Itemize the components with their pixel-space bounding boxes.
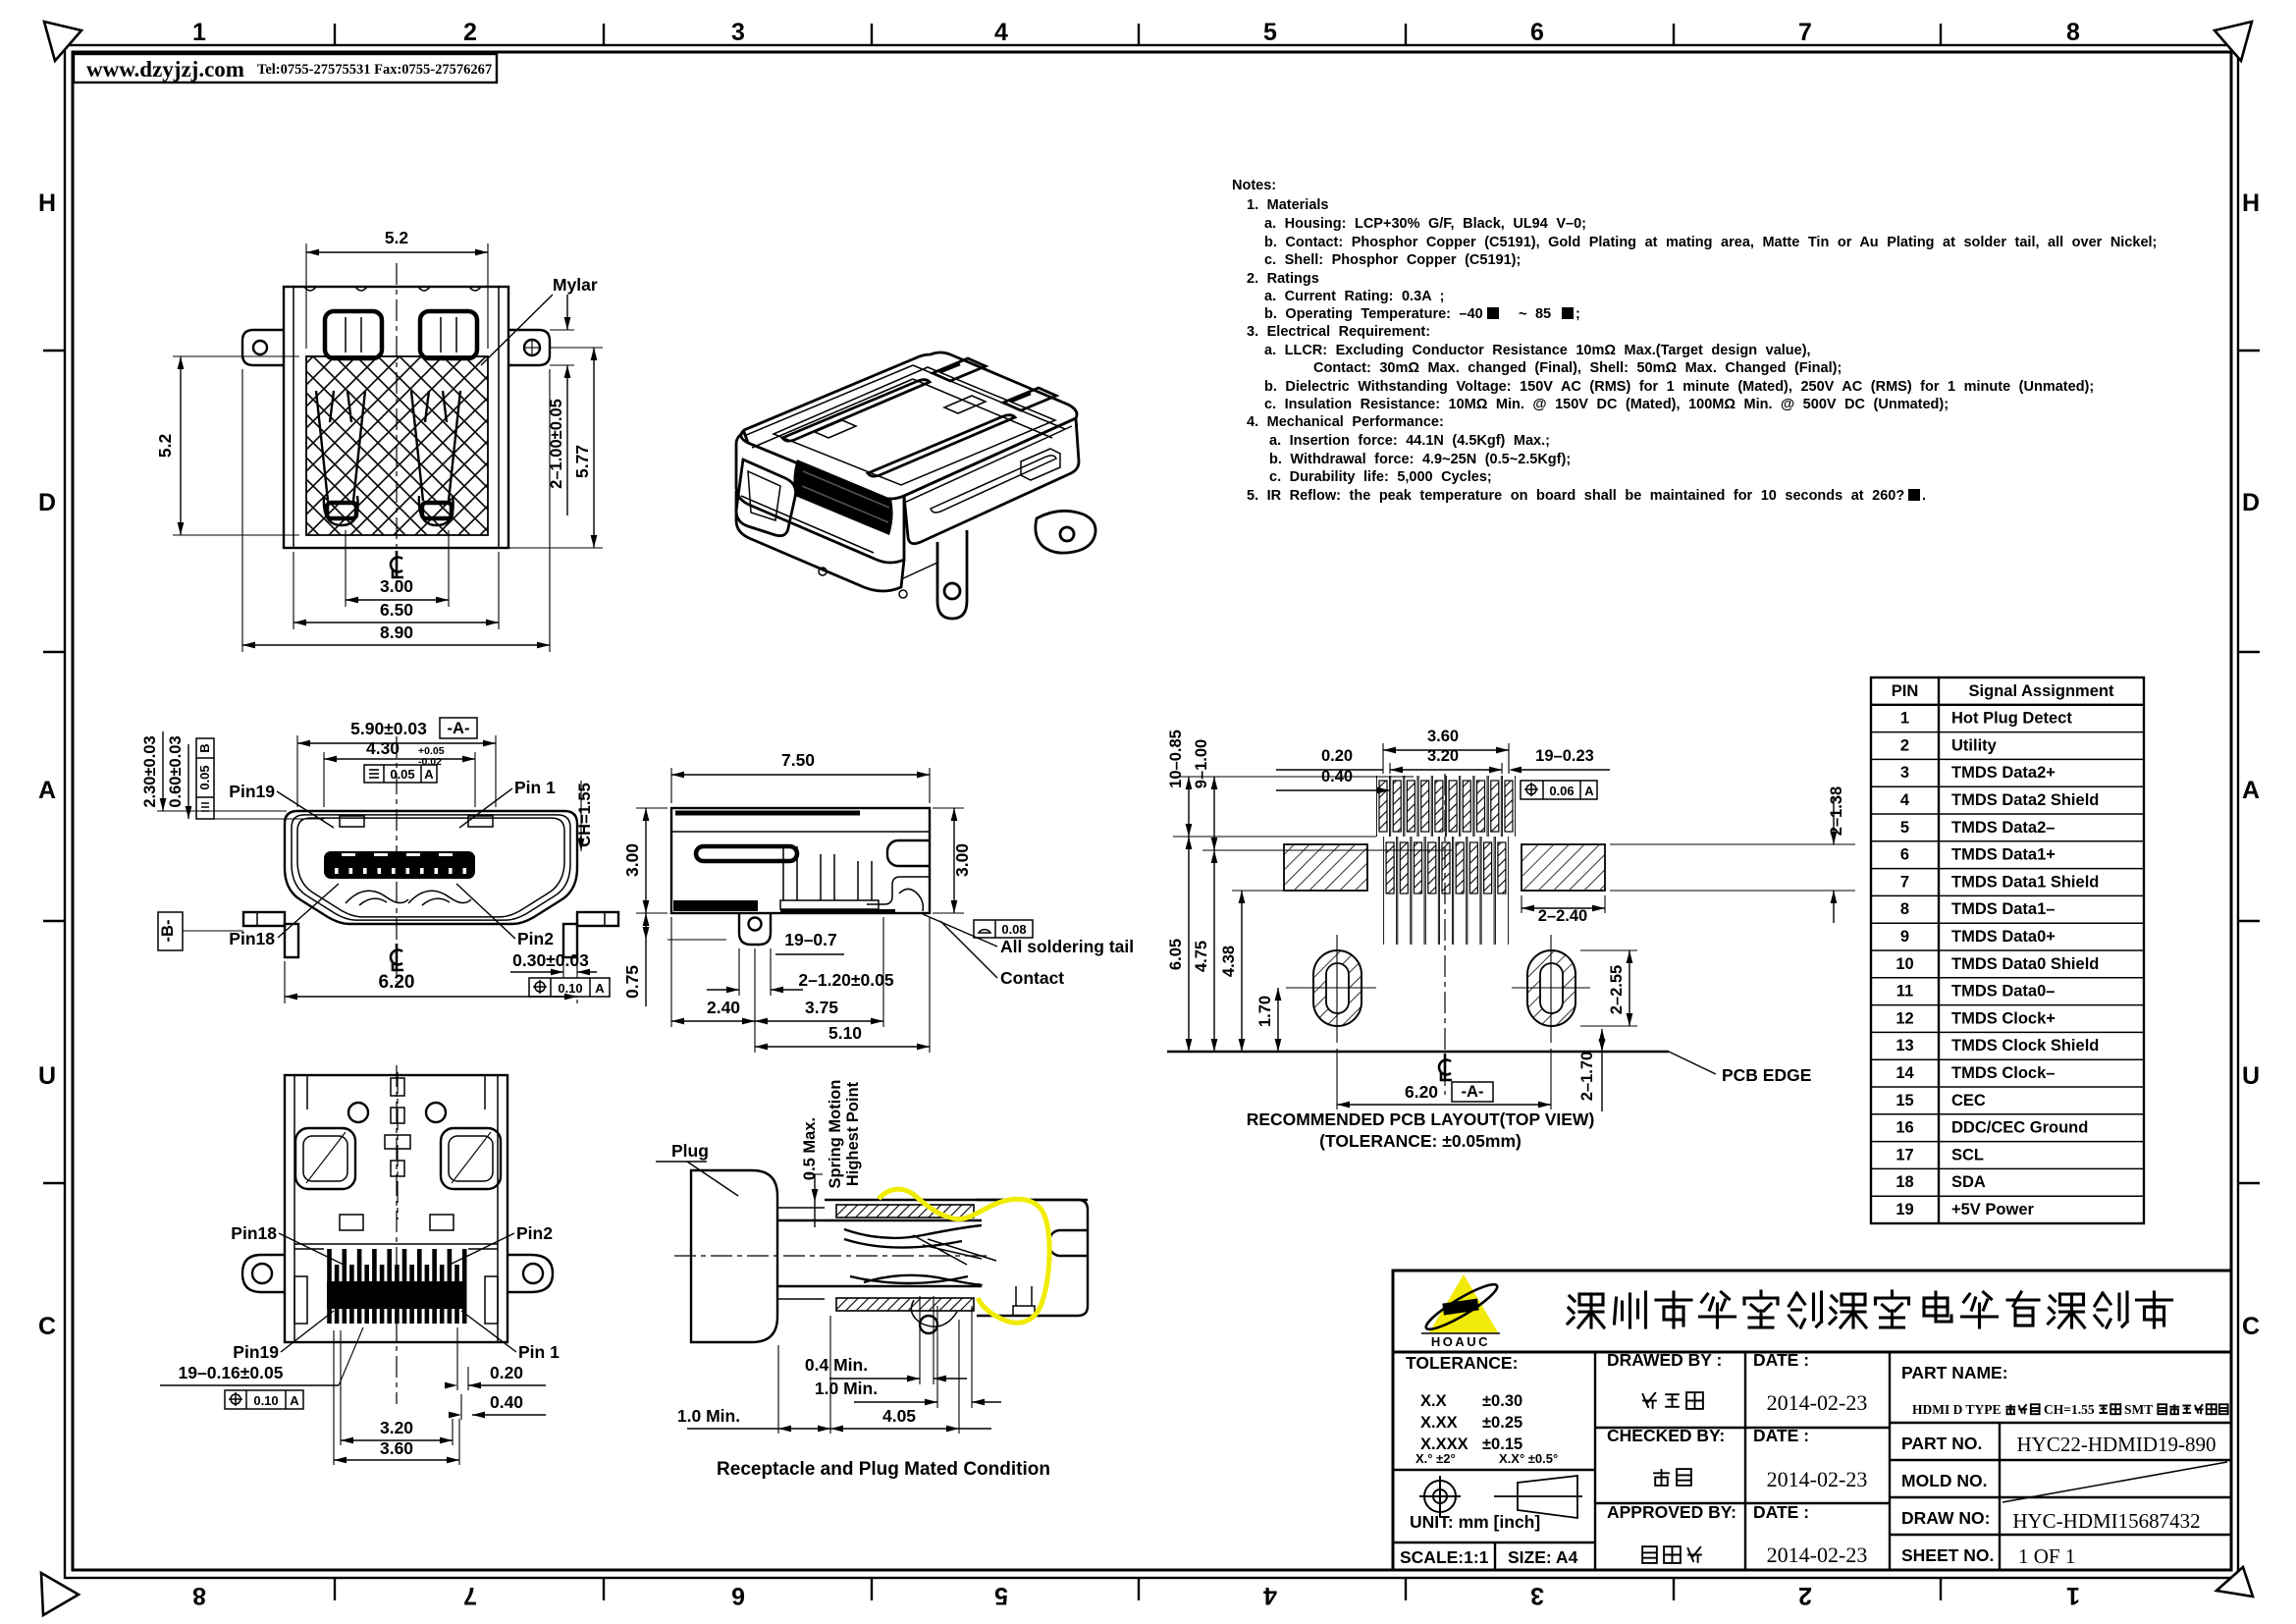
svg-text:TMDS Clock Shield: TMDS Clock Shield (1951, 1037, 2099, 1055)
svg-text:1 OF 1: 1 OF 1 (2018, 1544, 2075, 1568)
svg-text:2: 2 (1798, 1582, 1812, 1609)
svg-text:U: U (2242, 1062, 2260, 1090)
svg-text:DATE :: DATE : (1753, 1502, 1809, 1522)
svg-text:.: . (1922, 488, 1926, 504)
svg-text:PART NAME:: PART NAME: (1901, 1363, 2008, 1382)
svg-text:DRAWED BY :: DRAWED BY : (1607, 1350, 1722, 1370)
svg-text:±0.30: ±0.30 (1482, 1392, 1522, 1410)
svg-text:C: C (38, 1313, 56, 1340)
svg-text:Signal Assignment: Signal Assignment (1969, 682, 2114, 700)
svg-text:PART NO.: PART NO. (1901, 1434, 1982, 1453)
svg-text:2014-02-23: 2014-02-23 (1767, 1543, 1868, 1567)
svg-text:2–1.38: 2–1.38 (1828, 786, 1845, 836)
svg-text:A: A (290, 1393, 299, 1408)
svg-text:TMDS Data0+: TMDS Data0+ (1951, 928, 2056, 946)
svg-text:0.20: 0.20 (490, 1363, 523, 1382)
svg-text:Spring Motion: Spring Motion (827, 1080, 844, 1189)
svg-text:c. Durability life: 5,000: c. Durability life: 5,000 Cycles; (1269, 469, 1492, 485)
svg-text:a. Insertion force: 44.1N: a. Insertion force: 44.1N (4.5Kgf) Max.; (1269, 433, 1550, 449)
svg-text:B: B (197, 743, 212, 752)
svg-text:3. Electrical Requirement:: 3. Electrical Requirement: (1247, 324, 1430, 340)
svg-text:19–0.16±0.05: 19–0.16±0.05 (179, 1363, 284, 1382)
svg-text:3.00: 3.00 (622, 843, 642, 877)
svg-text:www.dzyjzj.com: www.dzyjzj.com (86, 57, 244, 81)
svg-text:-A-: -A- (448, 720, 470, 737)
svg-text:9–1.00: 9–1.00 (1193, 739, 1210, 788)
svg-text:A: A (1584, 784, 1594, 798)
svg-text:3.00: 3.00 (380, 576, 413, 596)
svg-text:Pin19: Pin19 (233, 1342, 279, 1362)
svg-text:13: 13 (1896, 1037, 1913, 1055)
svg-text:3.60: 3.60 (1427, 728, 1459, 745)
svg-text:HDMI D TYPE: HDMI D TYPE (1912, 1402, 2002, 1417)
svg-text:5.2: 5.2 (155, 434, 175, 459)
svg-text:14: 14 (1896, 1064, 1914, 1082)
svg-text:±0.25: ±0.25 (1482, 1414, 1522, 1432)
svg-text:2: 2 (1900, 736, 1909, 754)
svg-text:TMDS Data1 Shield: TMDS Data1 Shield (1951, 873, 2099, 891)
svg-text:3.60: 3.60 (380, 1438, 413, 1458)
svg-text:A: A (38, 777, 56, 804)
svg-text:A: A (2242, 777, 2260, 804)
svg-text:18: 18 (1896, 1173, 1913, 1191)
svg-text:5: 5 (994, 1582, 1008, 1609)
svg-text:TMDS Data1–: TMDS Data1– (1951, 900, 2055, 918)
svg-text:HYC22-HDMID19-890: HYC22-HDMID19-890 (2017, 1433, 2216, 1456)
svg-text:2014-02-23: 2014-02-23 (1767, 1390, 1868, 1415)
svg-text:+5V Power: +5V Power (1951, 1201, 2034, 1218)
svg-text:0.05: 0.05 (197, 765, 212, 789)
svg-text:a. Current Rating: 0.3A ;: a. Current Rating: 0.3A ; (1264, 289, 1444, 304)
svg-text:c. Shell: Phosphor Copper: c. Shell: Phosphor Copper (C5191); (1264, 252, 1521, 268)
svg-text:Pin19: Pin19 (229, 782, 275, 801)
svg-text:0.06: 0.06 (1549, 784, 1574, 798)
svg-text:X.X° ±0.5°: X.X° ±0.5° (1499, 1451, 1558, 1466)
svg-text:0.75: 0.75 (622, 965, 642, 999)
svg-text:9: 9 (1900, 928, 1909, 946)
svg-text:5.10: 5.10 (828, 1023, 862, 1043)
svg-text:11: 11 (1896, 983, 1913, 1001)
svg-text:0.05: 0.05 (390, 767, 414, 782)
svg-text:19–0.23: 19–0.23 (1535, 747, 1594, 765)
svg-text:1.0 Min.: 1.0 Min. (815, 1379, 878, 1398)
svg-text:0.40: 0.40 (490, 1392, 523, 1412)
svg-text:Pin 1: Pin 1 (514, 778, 556, 797)
svg-text:5.90±0.03: 5.90±0.03 (350, 719, 427, 738)
svg-text:Pin18: Pin18 (231, 1223, 277, 1243)
svg-text:0.20: 0.20 (1321, 747, 1353, 765)
svg-text:4: 4 (994, 19, 1008, 46)
svg-text:DATE :: DATE : (1753, 1426, 1809, 1445)
svg-text:Mylar: Mylar (553, 275, 598, 295)
svg-text:Pin18: Pin18 (229, 929, 275, 948)
svg-text:UNIT: mm [inch]: UNIT: mm [inch] (1410, 1512, 1540, 1532)
svg-text:U: U (38, 1062, 56, 1090)
svg-text:SMT: SMT (2124, 1402, 2153, 1417)
svg-text:~ 85: ~ 85 (1519, 306, 1551, 322)
svg-text:TMDS Data1+: TMDS Data1+ (1951, 846, 2056, 864)
svg-text:Pin 1: Pin 1 (518, 1342, 560, 1362)
svg-text:2.30±0.03: 2.30±0.03 (141, 735, 159, 807)
svg-text:a. LLCR: Excluding Conducto: a. LLCR: Excluding Conductor Resistance … (1264, 343, 1811, 358)
svg-text:D: D (2242, 489, 2260, 516)
svg-text:5: 5 (1900, 819, 1909, 837)
svg-text:A: A (595, 981, 605, 996)
svg-text:-A-: -A- (1462, 1083, 1484, 1101)
svg-text:HOAUC: HOAUC (1431, 1334, 1490, 1349)
svg-text:4.38: 4.38 (1220, 946, 1238, 977)
svg-text:Contact: 30mΩ Max. changed: Contact: 30mΩ Max. changed (Final), Shel… (1313, 360, 1842, 376)
svg-text:3: 3 (731, 19, 745, 46)
svg-text:CEC: CEC (1951, 1092, 1986, 1110)
svg-text:4.75: 4.75 (1193, 941, 1210, 972)
svg-text:15: 15 (1896, 1092, 1913, 1110)
svg-text:TMDS Data2 Shield: TMDS Data2 Shield (1951, 791, 2099, 809)
svg-text:0.4 Min.: 0.4 Min. (805, 1355, 868, 1375)
svg-text:0.10: 0.10 (558, 981, 582, 996)
svg-text:0.08: 0.08 (1001, 922, 1026, 937)
svg-text:6: 6 (731, 1582, 745, 1609)
svg-text:7.50: 7.50 (781, 750, 815, 770)
svg-text:D: D (38, 489, 56, 516)
svg-text:2: 2 (463, 19, 477, 46)
svg-text:RECOMMENDED PCB LAYOUT(TOP: RECOMMENDED PCB LAYOUT(TOP VIEW) (1247, 1110, 1595, 1129)
svg-text:3.20: 3.20 (380, 1418, 413, 1437)
svg-text:X.XX: X.XX (1420, 1414, 1458, 1432)
svg-text:7: 7 (1900, 873, 1909, 891)
svg-text:CH=1.55: CH=1.55 (2044, 1402, 2095, 1417)
svg-text:1. Materials: 1. Materials (1247, 197, 1329, 213)
svg-text:Notes:: Notes: (1232, 178, 1276, 193)
svg-text:DDC/CEC Ground: DDC/CEC Ground (1951, 1119, 2088, 1137)
svg-text:(TOLERANCE: ±0.05mm): (TOLERANCE: ±0.05mm) (1319, 1131, 1522, 1151)
svg-text:2–1.20±0.05: 2–1.20±0.05 (798, 970, 893, 990)
svg-text:6.50: 6.50 (380, 600, 413, 620)
svg-text:CH=1.55: CH=1.55 (576, 783, 594, 847)
svg-text:PCB EDGE: PCB EDGE (1722, 1065, 1811, 1085)
svg-text:;: ; (1575, 306, 1580, 322)
svg-text:3.20: 3.20 (1427, 747, 1459, 765)
svg-text:SCL: SCL (1951, 1146, 1984, 1164)
svg-text:0.40: 0.40 (1321, 768, 1353, 785)
svg-text:3.75: 3.75 (805, 998, 838, 1017)
svg-text:Contact: Contact (1000, 968, 1064, 988)
svg-text:4.05: 4.05 (882, 1406, 916, 1426)
svg-text:1: 1 (1900, 710, 1909, 728)
svg-text:5: 5 (1263, 19, 1277, 46)
svg-text:10: 10 (1896, 955, 1913, 973)
svg-text:Tel:0755-27575531 Fax:0755-27: Tel:0755-27575531 Fax:0755-27576267 (257, 62, 492, 78)
svg-text:DRAW NO:: DRAW NO: (1901, 1508, 1990, 1528)
svg-text:TOLERANCE:: TOLERANCE: (1406, 1353, 1518, 1373)
svg-text:2014-02-23: 2014-02-23 (1767, 1467, 1868, 1491)
svg-text:7: 7 (463, 1582, 477, 1609)
svg-text:MOLD NO.: MOLD NO. (1901, 1471, 1988, 1490)
svg-text:-B-: -B- (159, 920, 177, 943)
svg-text:4: 4 (1900, 791, 1910, 809)
svg-text:1.70: 1.70 (1256, 996, 1274, 1027)
svg-text:3: 3 (1530, 1582, 1544, 1609)
svg-text:2–2.40: 2–2.40 (1538, 907, 1587, 925)
svg-text:PIN: PIN (1892, 682, 1919, 700)
svg-text:Pin2: Pin2 (516, 1223, 553, 1243)
svg-text:TMDS Data2–: TMDS Data2– (1951, 819, 2055, 837)
svg-text:8: 8 (1900, 900, 1909, 918)
svg-text:1.0 Min.: 1.0 Min. (677, 1406, 740, 1426)
svg-text:c. Insulation Resistance: 1: c. Insulation Resistance: 10MΩ Min. @ 15… (1264, 397, 1949, 412)
svg-text:b. Contact: Phosphor Copper: b. Contact: Phosphor Copper (C5191), Gol… (1264, 235, 2157, 250)
svg-text:8.90: 8.90 (380, 623, 413, 642)
svg-text:Receptacle and Plug Mated: Receptacle and Plug Mated Condition (717, 1459, 1050, 1480)
svg-text:2. Ratings: 2. Ratings (1247, 271, 1319, 287)
svg-text:3: 3 (1900, 764, 1909, 782)
svg-text:Hot Plug Detect: Hot Plug Detect (1951, 710, 2072, 728)
svg-text:6: 6 (1900, 846, 1909, 864)
svg-text:3.00: 3.00 (952, 843, 972, 877)
svg-text:DATE :: DATE : (1753, 1350, 1809, 1370)
svg-text:b. Operating Temperature: –: b. Operating Temperature: –40 (1264, 306, 1483, 322)
svg-text:2.40: 2.40 (707, 998, 740, 1017)
svg-text:1: 1 (192, 19, 206, 46)
svg-text:APPROVED BY:: APPROVED BY: (1607, 1502, 1736, 1522)
svg-text:C: C (2242, 1313, 2260, 1340)
svg-text:0.5 Max.: 0.5 Max. (801, 1117, 819, 1180)
svg-text:SIZE: A4: SIZE: A4 (1508, 1547, 1578, 1567)
svg-text:A: A (424, 767, 434, 782)
svg-text:4. Mechanical Performance:: 4. Mechanical Performance: (1247, 414, 1444, 430)
svg-text:TMDS Data0–: TMDS Data0– (1951, 983, 2055, 1001)
svg-text:7: 7 (1798, 19, 1812, 46)
svg-text:19–0.7: 19–0.7 (784, 930, 837, 949)
svg-text:5. IR Reflow: the peak te: 5. IR Reflow: the peak temperature on bo… (1247, 488, 1904, 504)
svg-text:H: H (2242, 189, 2260, 217)
svg-text:b. Dielectric Withstanding: b. Dielectric Withstanding Voltage: 150V… (1264, 379, 2094, 395)
svg-text:TMDS Data0 Shield: TMDS Data0 Shield (1951, 955, 2099, 973)
svg-text:SHEET NO.: SHEET NO. (1901, 1545, 1994, 1565)
svg-text:SDA: SDA (1951, 1173, 1986, 1191)
svg-text:6.20: 6.20 (379, 972, 415, 993)
svg-text:5.77: 5.77 (572, 445, 592, 478)
svg-text:X.X: X.X (1420, 1392, 1447, 1410)
svg-text:CHECKED BY:: CHECKED BY: (1607, 1426, 1725, 1445)
svg-text:8: 8 (2066, 19, 2080, 46)
svg-text:2–1.00±0.05: 2–1.00±0.05 (548, 399, 565, 489)
svg-text:TMDS Data2+: TMDS Data2+ (1951, 764, 2056, 782)
svg-text:4.30: 4.30 (366, 738, 400, 758)
svg-text:X.° ±2°: X.° ±2° (1415, 1451, 1456, 1466)
svg-text:4: 4 (1263, 1582, 1277, 1609)
svg-text:H: H (38, 189, 56, 217)
svg-text:b. Withdrawal force: 4.9~25: b. Withdrawal force: 4.9~25N (0.5~2.5Kgf… (1269, 452, 1571, 467)
svg-text:10–0.85: 10–0.85 (1167, 730, 1185, 788)
svg-text:Highest Point: Highest Point (844, 1081, 862, 1186)
svg-text:8: 8 (192, 1582, 206, 1609)
svg-text:Pin2: Pin2 (517, 929, 554, 948)
svg-text:17: 17 (1896, 1146, 1913, 1164)
svg-text:6.20: 6.20 (1405, 1082, 1438, 1102)
svg-text:12: 12 (1896, 1009, 1913, 1027)
svg-text:HYC-HDMI15687432: HYC-HDMI15687432 (2012, 1509, 2200, 1533)
svg-text:SCALE:1:1: SCALE:1:1 (1400, 1547, 1489, 1567)
svg-text:0.10: 0.10 (253, 1393, 278, 1408)
svg-text:16: 16 (1896, 1119, 1913, 1137)
svg-text:Plug: Plug (671, 1141, 709, 1161)
svg-text:All soldering tail: All soldering tail (1000, 937, 1134, 956)
svg-text:6: 6 (1530, 19, 1544, 46)
svg-text:Utility: Utility (1951, 736, 1998, 754)
svg-text:2–2.55: 2–2.55 (1608, 965, 1626, 1014)
svg-text:19: 19 (1896, 1201, 1913, 1218)
svg-text:5.2: 5.2 (385, 228, 409, 247)
svg-text:2–1.70: 2–1.70 (1578, 1052, 1596, 1101)
svg-text:1: 1 (2066, 1582, 2080, 1609)
svg-text:TMDS Clock+: TMDS Clock+ (1951, 1009, 2056, 1027)
svg-text:a. Housing: LCP+30% G/F, B: a. Housing: LCP+30% G/F, Black, UL94 V–0… (1264, 216, 1586, 232)
svg-text:6.05: 6.05 (1167, 939, 1185, 970)
svg-text:0.60±0.03: 0.60±0.03 (167, 735, 185, 807)
svg-text:TMDS Clock–: TMDS Clock– (1951, 1064, 2055, 1082)
